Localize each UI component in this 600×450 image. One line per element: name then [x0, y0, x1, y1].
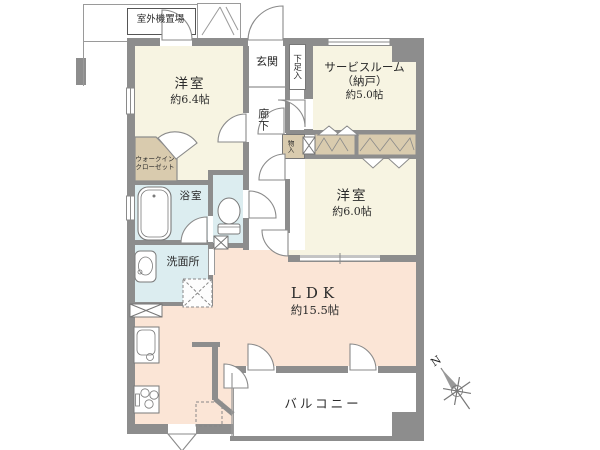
outdoor-unit-wall-stub [76, 58, 86, 85]
western-room-2-bottom-wall [288, 255, 416, 262]
bottom-out-swing-door [168, 434, 196, 450]
closet-bottom-wall [286, 154, 416, 159]
storage-label: 物入 [286, 136, 294, 156]
balcony-door-opening-1 [246, 366, 276, 373]
hallway-label: 廊下 [256, 97, 270, 143]
floor-plan: N 洋室 約6.4帖 サービスルーム （納戸） 約5.0帖 洋室 約6.0帖 L… [0, 0, 600, 450]
hall-right-wall-upper [285, 88, 290, 133]
service-room-label: サービスルーム （納戸） 約5.0帖 [313, 60, 416, 102]
outdoor-unit-label: 室外機置場 [127, 14, 194, 26]
shoe-box-label: 下足入 [291, 47, 302, 87]
kitchen-partition-v [212, 342, 218, 400]
western-room-1-label: 洋室 約6.4帖 [131, 76, 249, 107]
western-room-2-door-opening [285, 159, 290, 179]
service-room-door-opening [304, 99, 313, 129]
bathroom-washroom-wall [131, 240, 213, 245]
ldk-label: LDK 約15.5帖 [250, 284, 380, 317]
outdoor-unit-side-line [83, 40, 84, 86]
toilet-door-opening [243, 190, 249, 218]
entrance-label: 玄関 [249, 55, 285, 69]
western-room-1-door-opening [243, 113, 249, 142]
balcony-door-opening-2 [348, 366, 378, 373]
hatched-structure [197, 3, 241, 41]
toilet-bottom-wall [213, 243, 249, 248]
washroom-bottom-wall [131, 302, 213, 306]
hall-left-wall [243, 40, 249, 250]
toilet-floor [213, 175, 243, 245]
closet-divider [355, 134, 358, 155]
balcony-label: バルコニー [233, 396, 413, 412]
wic-bathroom-wall [131, 180, 213, 185]
bathroom-label: 浴室 [172, 190, 210, 203]
entrance-step-line [249, 86, 285, 88]
washroom-floor [135, 245, 213, 305]
closet-b [358, 134, 416, 155]
toilet-top-wall [208, 170, 249, 175]
balcony-bottom-band [230, 436, 424, 441]
western-room-2-label: 洋室 約6.0帖 [288, 188, 416, 219]
entrance-door-arc [248, 6, 283, 40]
entrance-door-opening [248, 38, 283, 46]
compass-north-label: N [428, 353, 444, 369]
compass-icon: N [419, 347, 482, 419]
outdoor-door-opening [160, 38, 192, 46]
walk-in-closet-label: ウォークイン クローゼット [135, 155, 175, 171]
closet-top-wall [286, 130, 416, 135]
balcony-corner-block [392, 412, 416, 436]
bathroom-door-opening [208, 216, 213, 242]
washroom-label: 洗面所 [155, 255, 211, 269]
right-wall [416, 38, 424, 437]
closet-a [315, 134, 355, 155]
bottom-door-opening [168, 424, 196, 434]
